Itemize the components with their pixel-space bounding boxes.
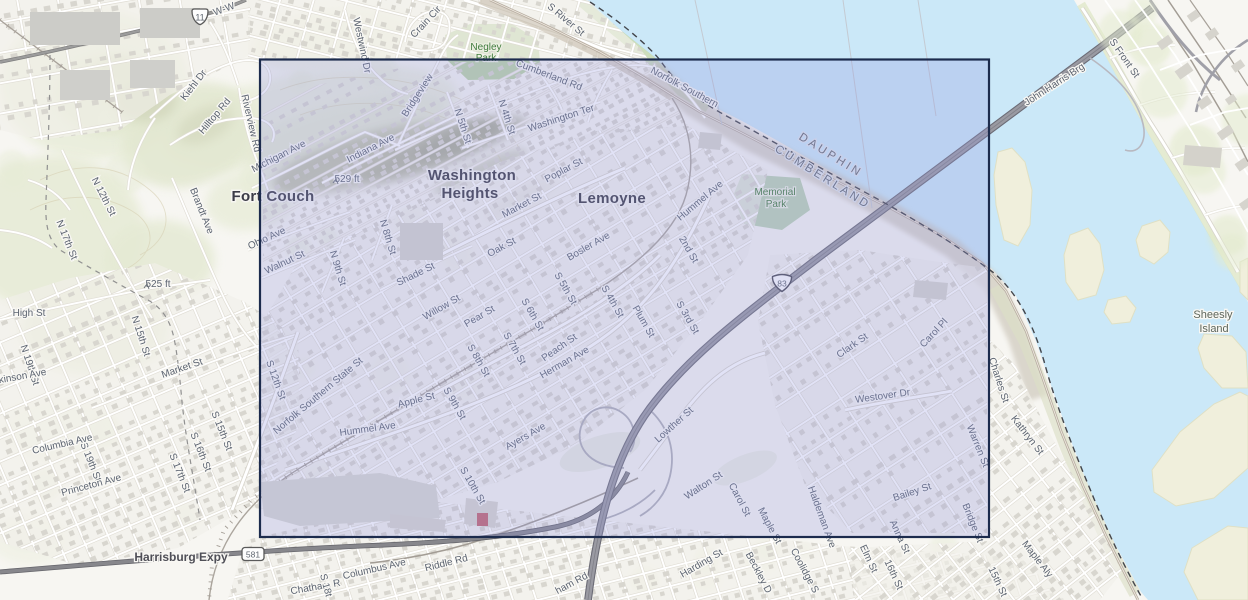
svg-text:Negley: Negley [470,42,501,53]
svg-text:581: 581 [246,549,260,559]
svg-text:High St: High St [13,308,46,319]
svg-text:11: 11 [195,12,204,22]
svg-text:Sheesly: Sheesly [1193,309,1233,321]
svg-text:Harrisburg Expy: Harrisburg Expy [134,550,228,564]
svg-text:Island: Island [1199,323,1228,335]
